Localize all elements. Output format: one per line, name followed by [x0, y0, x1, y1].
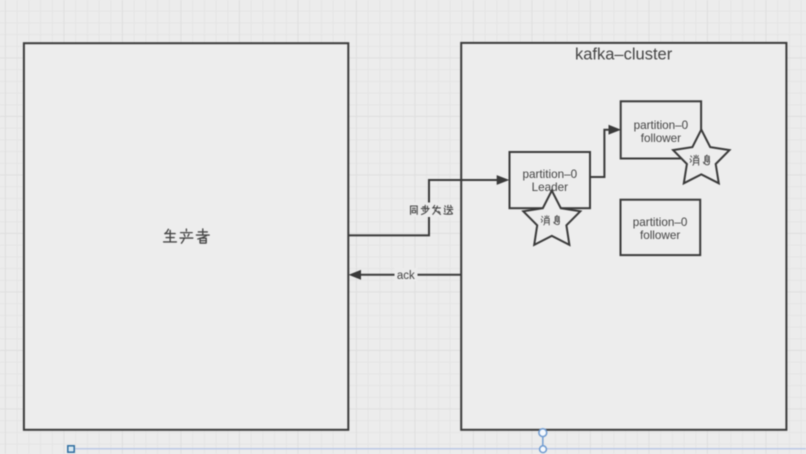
svg-text:ack: ack: [397, 270, 415, 282]
svg-text:follower: follower: [641, 132, 681, 145]
svg-text:kafka–cluster: kafka–cluster: [575, 46, 673, 64]
svg-text:follower: follower: [640, 229, 680, 242]
svg-text:partition–0: partition–0: [633, 216, 688, 229]
svg-text:partition–0: partition–0: [634, 119, 689, 132]
svg-text:Leader: Leader: [532, 181, 569, 194]
svg-text:partition–0: partition–0: [523, 168, 578, 181]
